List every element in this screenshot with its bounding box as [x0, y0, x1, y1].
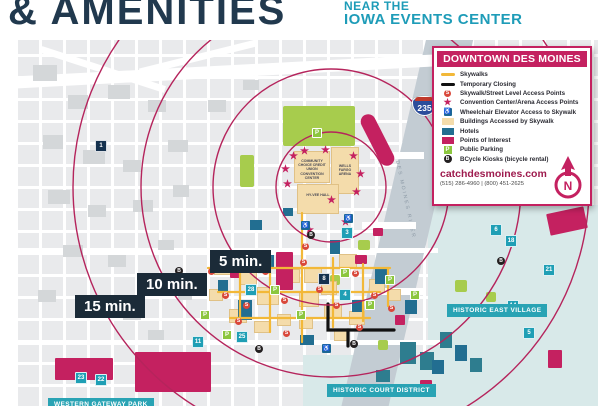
location-number-marker: 6 — [490, 224, 502, 236]
legend-item-label: Points of Interest — [460, 137, 511, 144]
legend-title: DOWNTOWN DES MOINES — [437, 51, 587, 67]
public-parking-icon: P — [312, 128, 322, 138]
location-number-marker: 4 — [339, 289, 351, 301]
skywalk-access-icon: S — [235, 318, 242, 325]
subtitle-venue: IOWA EVENTS CENTER — [344, 11, 522, 28]
legend-item: Buildings Accessed by Skywalk — [434, 117, 590, 126]
legend-panel: DOWNTOWN DES MOINES SkywalksTemporary Cl… — [432, 46, 592, 206]
location-number-marker: 28 — [245, 284, 257, 296]
skywalk-access-icon: S — [333, 302, 340, 309]
location-number-marker: 25 — [236, 331, 248, 343]
legend-item: Temporary Closing — [434, 79, 590, 88]
walk-time-label: 10 min. — [137, 273, 207, 296]
bcycle-kiosk-icon: B — [350, 340, 358, 348]
skywalk-access-icon: S — [283, 330, 290, 337]
page-title: & AMENITIES — [8, 0, 286, 31]
legend-item: PPublic Parking — [434, 145, 590, 154]
legend-item-label: Public Parking — [460, 146, 503, 153]
skywalk-access-icon: S — [371, 292, 378, 299]
legend-item: ★Convention Center/Arena Access Points — [434, 98, 590, 107]
legend-item-label: Buildings Accessed by Skywalk — [460, 118, 554, 125]
arena-access-star-icon: ★ — [327, 196, 336, 206]
magenta-square-icon — [440, 137, 455, 144]
north-arrow-icon: N — [550, 155, 586, 201]
legend-item: Skywalks — [434, 70, 590, 79]
district-label: HISTORIC COURT DISTRICT — [327, 384, 436, 397]
district-label: HISTORIC EAST VILLAGE — [447, 304, 547, 317]
public-parking-icon: P — [270, 285, 280, 295]
public-parking-icon: P — [222, 330, 232, 340]
skywalk-access-icon: S — [388, 305, 395, 312]
arena-access-star-icon: ★ — [283, 180, 292, 190]
legend-item-label: Convention Center/Arena Access Points — [460, 99, 578, 106]
legend-item: ♿Wheelchair Elevator Access to Skywalk — [434, 108, 590, 117]
arena-access-star-icon: ★ — [356, 170, 365, 180]
skywalk-access-icon: S — [300, 259, 307, 266]
skywalk-line-icon — [440, 73, 455, 76]
location-number-marker: 3 — [341, 227, 353, 239]
location-number-marker: 11 — [192, 336, 204, 348]
arena-access-star-icon: ★ — [321, 146, 330, 156]
arena-access-star-icon: ★ — [349, 152, 358, 162]
map-brochure-page: & AMENITIES NEAR THE IOWA EVENTS CENTER … — [0, 0, 609, 406]
walk-time-label: 15 min. — [75, 295, 145, 318]
skywalk-access-icon: S — [316, 286, 323, 293]
closing-line-icon — [440, 83, 455, 86]
location-number-marker: 1 — [95, 140, 107, 152]
arena-access-star-icon: ★ — [281, 165, 290, 175]
public-parking-icon: P — [410, 290, 420, 300]
location-number-marker: 18 — [505, 235, 517, 247]
legend-item-label: Hotels — [460, 128, 479, 135]
bcycle-kiosk-icon: B — [255, 345, 263, 353]
b-circle-icon: B — [440, 155, 455, 163]
wheelchair-access-icon: ♿ — [301, 221, 310, 230]
district-label: WESTERN GATEWAY PARK — [48, 398, 154, 406]
p-square-icon: P — [440, 145, 455, 155]
north-label: N — [564, 179, 573, 193]
legend-items: SkywalksTemporary ClosingSSkywalk/Street… — [434, 70, 590, 164]
location-number-marker: 22 — [95, 374, 107, 386]
tan-square-icon — [440, 118, 455, 125]
location-number-marker: 23 — [75, 372, 87, 384]
star-icon: ★ — [440, 98, 455, 107]
interstate-number: 235 — [417, 103, 431, 113]
walk-time-label: 5 min. — [210, 250, 271, 273]
location-number-marker: 5 — [523, 327, 535, 339]
arena-access-star-icon: ★ — [300, 147, 309, 157]
legend-item: SSkywalk/Street Level Access Points — [434, 89, 590, 98]
legend-item-label: Skywalks — [460, 71, 488, 78]
location-number-marker: 8 — [318, 273, 330, 285]
legend-item: Hotels — [434, 126, 590, 135]
public-parking-icon: P — [385, 275, 395, 285]
wheelchair-icon: ♿ — [440, 108, 455, 116]
skywalk-access-icon: S — [243, 302, 250, 309]
legend-item-label: BCycle Kiosks (bicycle rental) — [460, 156, 548, 163]
skywalk-access-icon: S — [356, 324, 363, 331]
arena-access-star-icon: ★ — [289, 152, 298, 162]
skywalk-access-icon: S — [222, 292, 229, 299]
legend-item-label: Wheelchair Elevator Access to Skywalk — [460, 109, 576, 116]
bcycle-kiosk-icon: B — [307, 231, 315, 239]
wheelchair-access-icon: ♿ — [344, 214, 353, 223]
legend-item-label: Temporary Closing — [460, 81, 516, 88]
map-canvas: DES MOINES RIVER COMMUNITY CHOICE CREDIT… — [18, 40, 598, 406]
arena-access-star-icon: ★ — [352, 188, 361, 198]
blue-square-icon — [440, 128, 455, 135]
skywalk-access-icon: S — [281, 297, 288, 304]
location-number-marker: 21 — [543, 264, 555, 276]
wheelchair-access-icon: ♿ — [322, 344, 331, 353]
skywalk-access-icon: S — [352, 270, 359, 277]
skywalk-access-icon: S — [302, 243, 309, 250]
public-parking-icon: P — [340, 268, 350, 278]
bcycle-kiosk-icon: B — [497, 257, 505, 265]
legend-item-label: Skywalk/Street Level Access Points — [460, 90, 565, 97]
s-circle-icon: S — [440, 90, 455, 97]
legend-item: Points of Interest — [434, 136, 590, 145]
public-parking-icon: P — [200, 310, 210, 320]
public-parking-icon: P — [365, 300, 375, 310]
public-parking-icon: P — [296, 310, 306, 320]
